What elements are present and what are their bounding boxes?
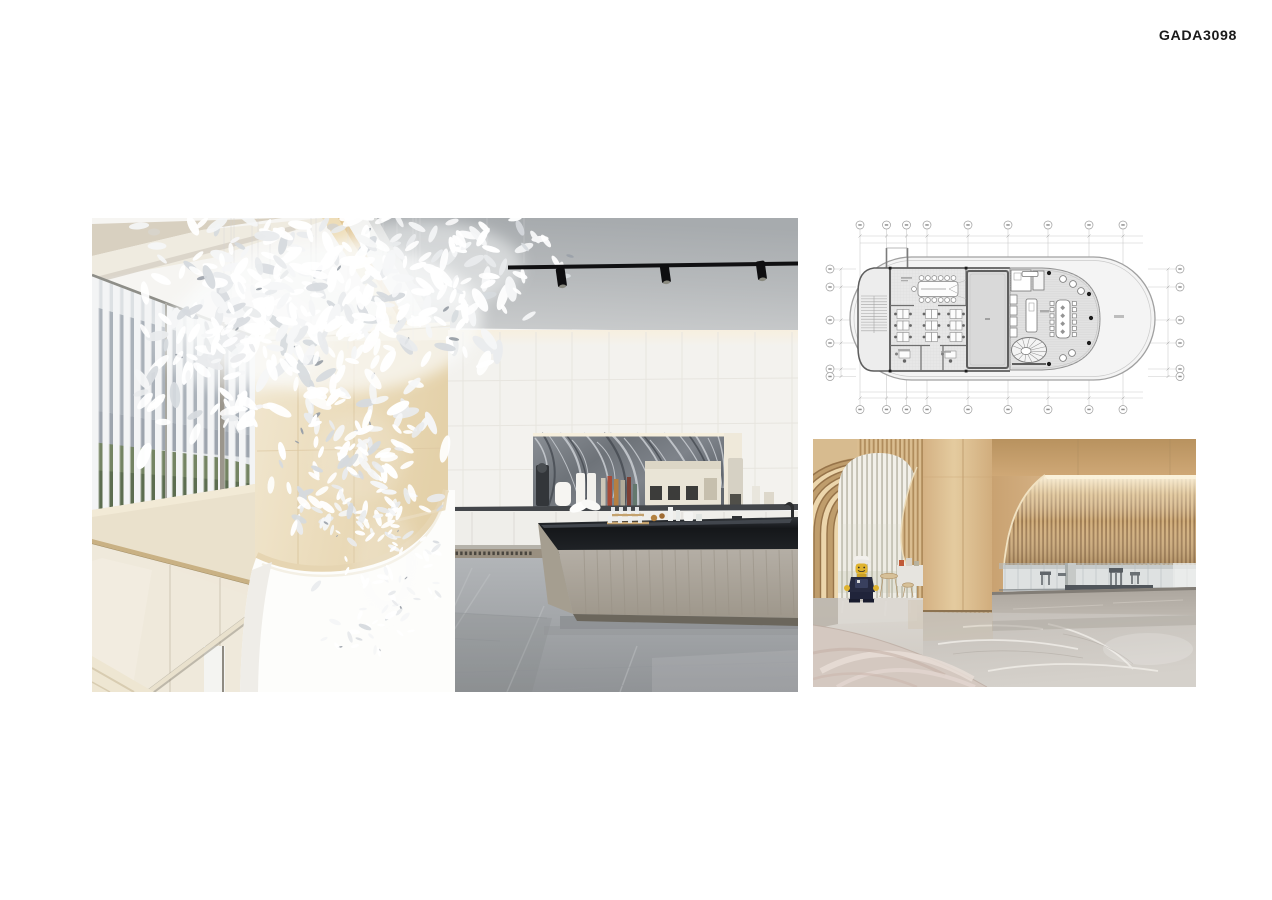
svg-text:GADA3098: GADA3098 — [1159, 28, 1237, 44]
